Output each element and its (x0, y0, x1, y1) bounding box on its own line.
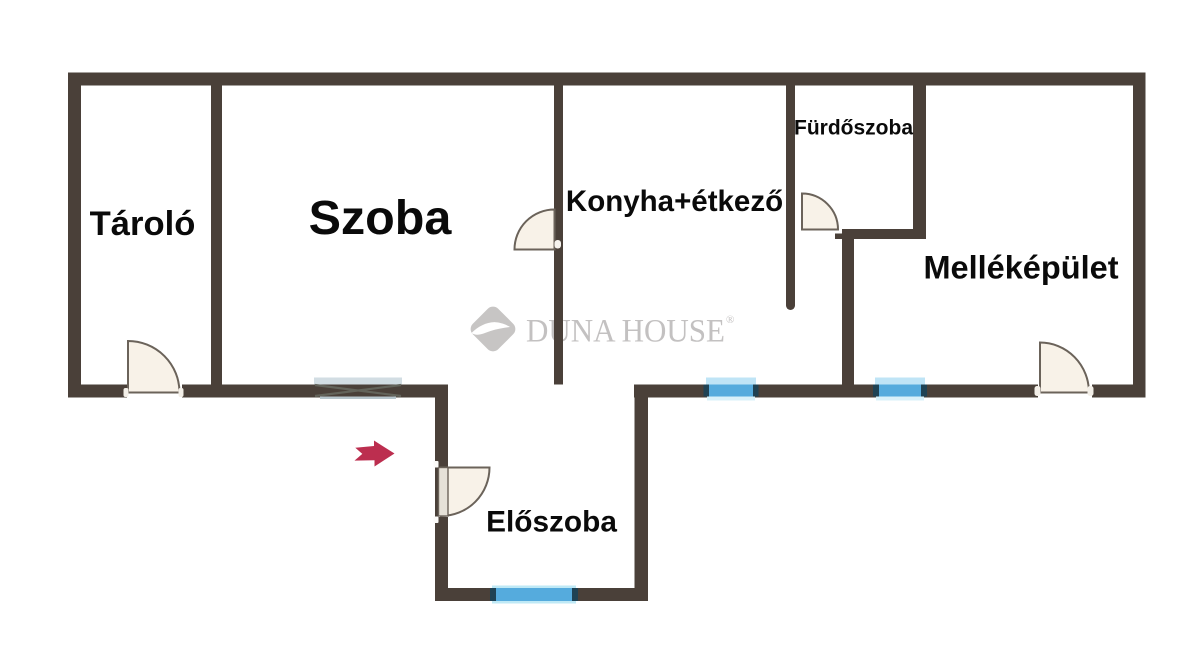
svg-text:Előszoba: Előszoba (486, 505, 617, 538)
svg-text:Szoba: Szoba (309, 191, 453, 245)
svg-text:Fürdőszoba: Fürdőszoba (794, 117, 913, 140)
svg-text:Melléképület: Melléképület (923, 249, 1118, 285)
svg-text:®: ® (726, 314, 734, 326)
svg-text:Tároló: Tároló (90, 205, 196, 243)
svg-text:Konyha+étkező: Konyha+étkező (566, 185, 783, 218)
